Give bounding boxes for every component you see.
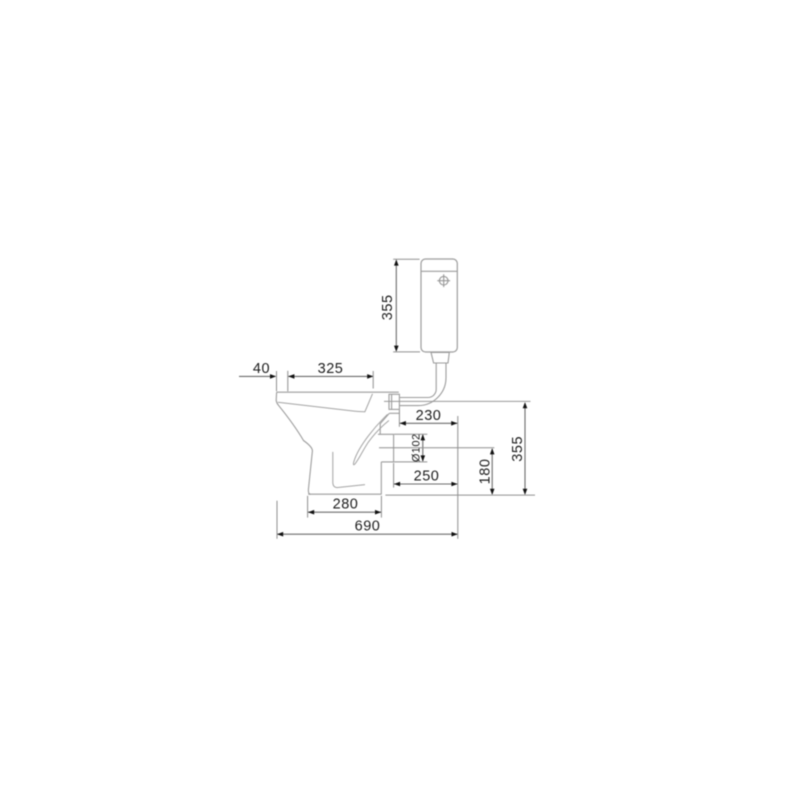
svg-text:325: 325 (318, 361, 344, 377)
svg-text:40: 40 (253, 361, 270, 377)
svg-text:690: 690 (355, 519, 381, 535)
svg-text:280: 280 (333, 497, 359, 513)
svg-text:355: 355 (510, 436, 526, 462)
svg-text:250: 250 (414, 469, 440, 485)
svg-text:180: 180 (477, 458, 493, 484)
svg-text:355: 355 (380, 294, 396, 320)
svg-text:230: 230 (416, 408, 442, 424)
